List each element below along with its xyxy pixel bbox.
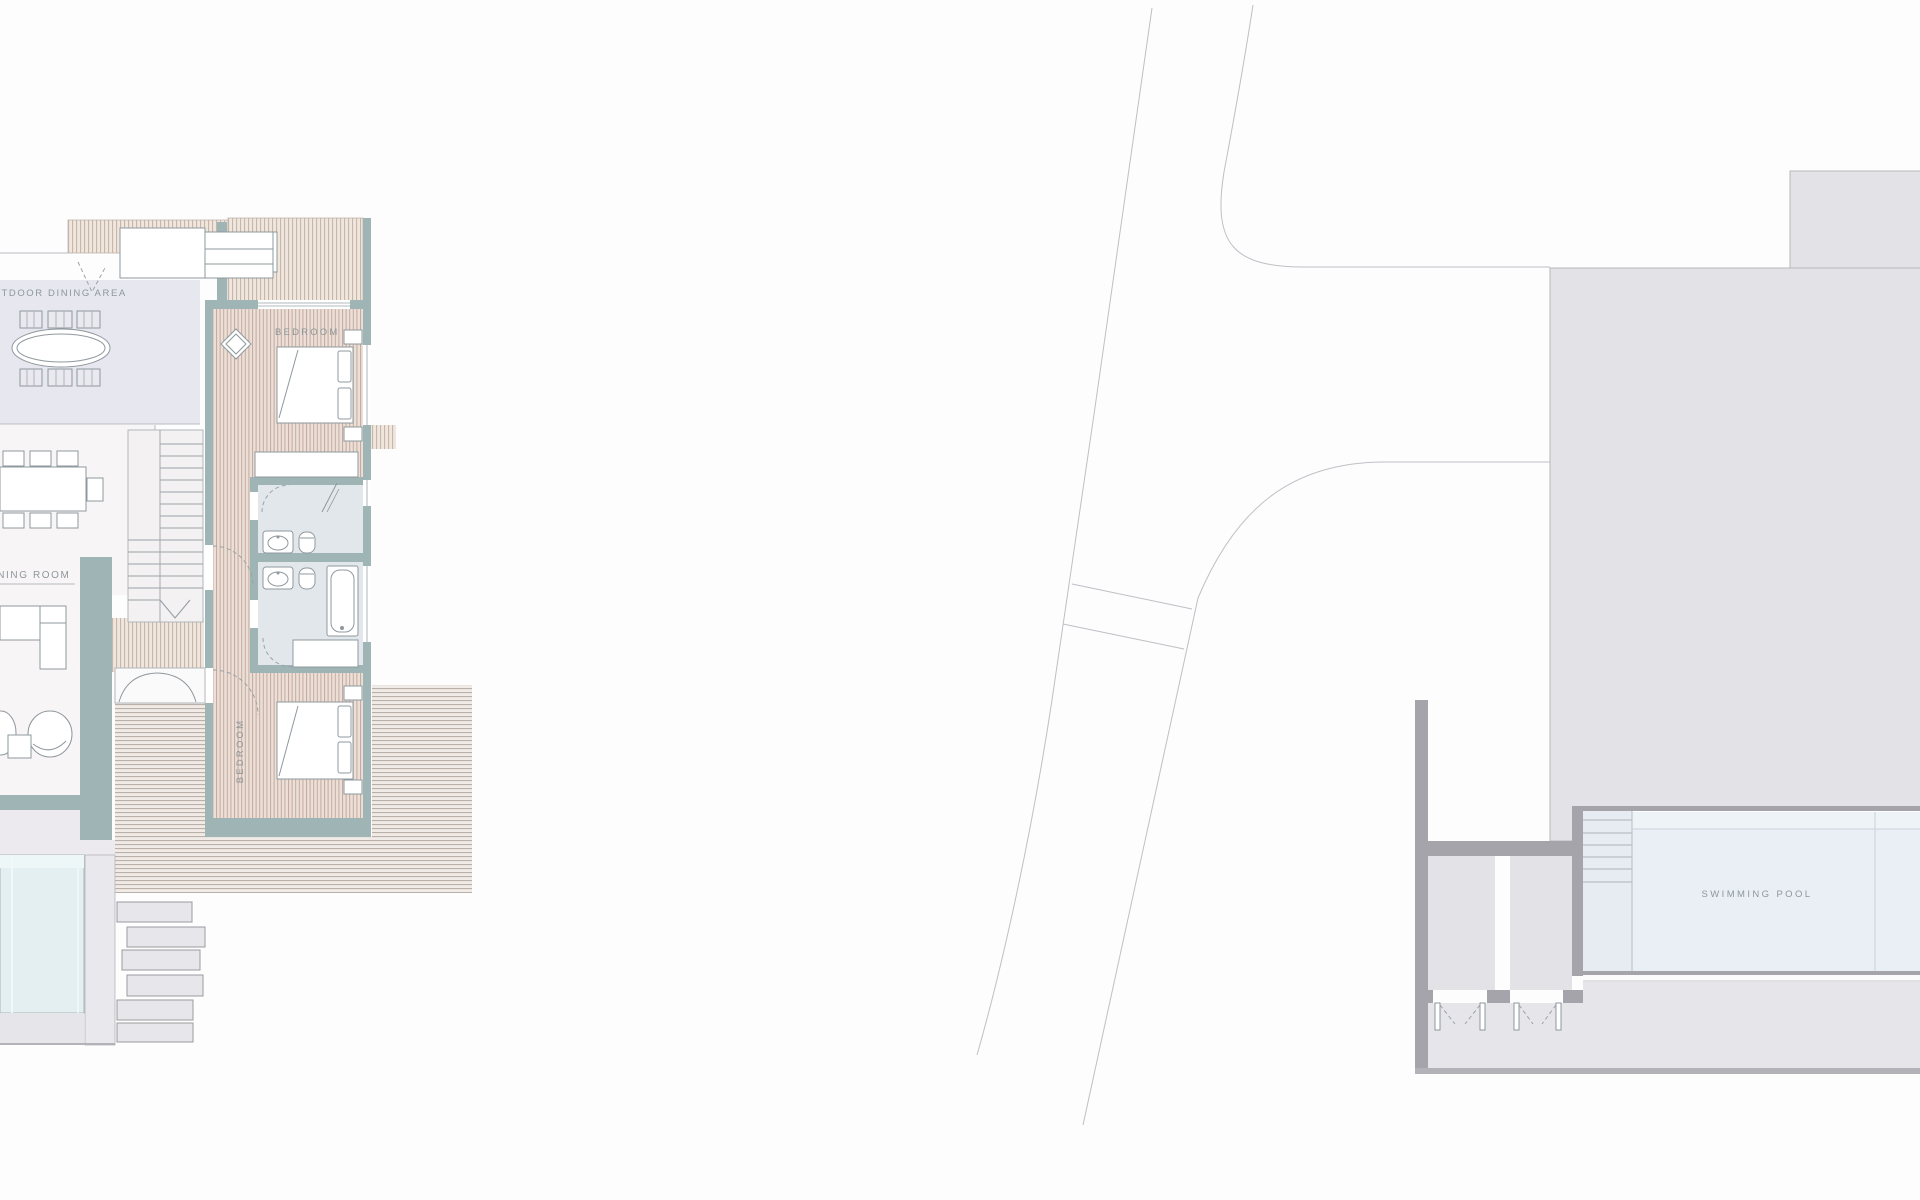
upper-bed-pillow-2 (338, 388, 351, 419)
living-room-bottom-wall (0, 795, 80, 810)
wing-top-window (258, 300, 350, 309)
door-wall-stub-3 (1563, 990, 1583, 1003)
pool-overflow-band (1632, 812, 1920, 829)
swimming-pool-label: SWIMMING POOL (1702, 889, 1813, 900)
site-plan-drawing: SWIMMING POOL (0, 0, 1920, 1200)
lower-bed-pillow-2 (338, 742, 351, 773)
pool-left-wall (1572, 806, 1583, 976)
changing-room-1 (1428, 856, 1495, 990)
kitchen-counter (120, 228, 205, 278)
wardrobe (255, 452, 358, 477)
lower-nightstand-2 (344, 780, 362, 794)
lower-deck-left (115, 703, 205, 893)
lower-deck-right (372, 685, 472, 893)
bath-middle-wall (250, 553, 363, 562)
changing-room-2 (1510, 856, 1572, 990)
outdoor-dining-table (12, 329, 110, 367)
terrace-main (1550, 268, 1920, 841)
toilet-2 (299, 568, 315, 589)
pool-side-walkway (85, 855, 115, 1045)
terrace-retaining-wall-vertical (1415, 700, 1428, 1073)
toilet-1 (299, 532, 315, 553)
pool-bottom-wall (1572, 971, 1920, 975)
wardrobe-wall (250, 477, 363, 485)
wing-right-wall (363, 218, 371, 818)
terrace-retaining-wall-horizontal (1415, 841, 1572, 856)
lower-bed-pillow-1 (338, 706, 351, 737)
garden-steps (117, 902, 205, 1042)
upper-nightstand-2 (344, 427, 362, 441)
lower-terrace-corner (80, 840, 115, 855)
lower-nightstand-1 (344, 686, 362, 700)
road-left-edge (977, 8, 1152, 1055)
bath-closet (293, 640, 358, 667)
side-table (8, 735, 31, 758)
bathtub-drain (340, 626, 344, 630)
door-wall-stub-1 (1415, 990, 1433, 1003)
lower-deck-center (205, 837, 372, 893)
sofa-chaise (40, 606, 66, 669)
wing-left-door-gap-2 (205, 668, 213, 703)
outdoor-dining-label: OUTDOOR DINING AREA (0, 288, 127, 299)
staircase (128, 430, 203, 622)
kitchen-unit (205, 232, 273, 278)
road-right-edge-upper (1221, 5, 1550, 267)
wing-left-door-gap-1 (205, 545, 213, 590)
bath-door-gap-1 (250, 492, 258, 520)
living-deck-wall (80, 557, 112, 840)
dining-table (0, 467, 86, 511)
wing-bottom-wall (205, 818, 371, 837)
lower-bedroom-label: BEDROOM (235, 719, 246, 784)
upper-nightstand-1 (344, 330, 362, 344)
upper-bed-pillow-1 (338, 351, 351, 382)
road-crossing-line-2 (1063, 624, 1184, 649)
wing-right-windows (363, 345, 371, 642)
bath-door-gap-2 (250, 600, 258, 628)
side-window-ledge (370, 425, 396, 449)
pool-terrace-complex: SWIMMING POOL (1415, 171, 1920, 1074)
entry-french-doors (115, 668, 205, 703)
pool-top-wall (1572, 806, 1920, 811)
upper-bedroom-label: BEDROOM (275, 327, 340, 338)
lower-terrace-band (0, 810, 80, 855)
dining-room-label: DINING ROOM (0, 570, 71, 581)
terrace-block-upper (1790, 171, 1920, 268)
door-wall-stub-2 (1487, 990, 1510, 1003)
walkway-edge (1415, 1068, 1920, 1074)
villa-plan: OUTDOOR DINING AREA DINING ROOM BEDROOM … (0, 218, 472, 1045)
plunge-pool-bottom-band (0, 1013, 84, 1043)
road-crossing-line-1 (1072, 584, 1192, 609)
site-plan-canvas: SWIMMING POOL (0, 0, 1920, 1200)
